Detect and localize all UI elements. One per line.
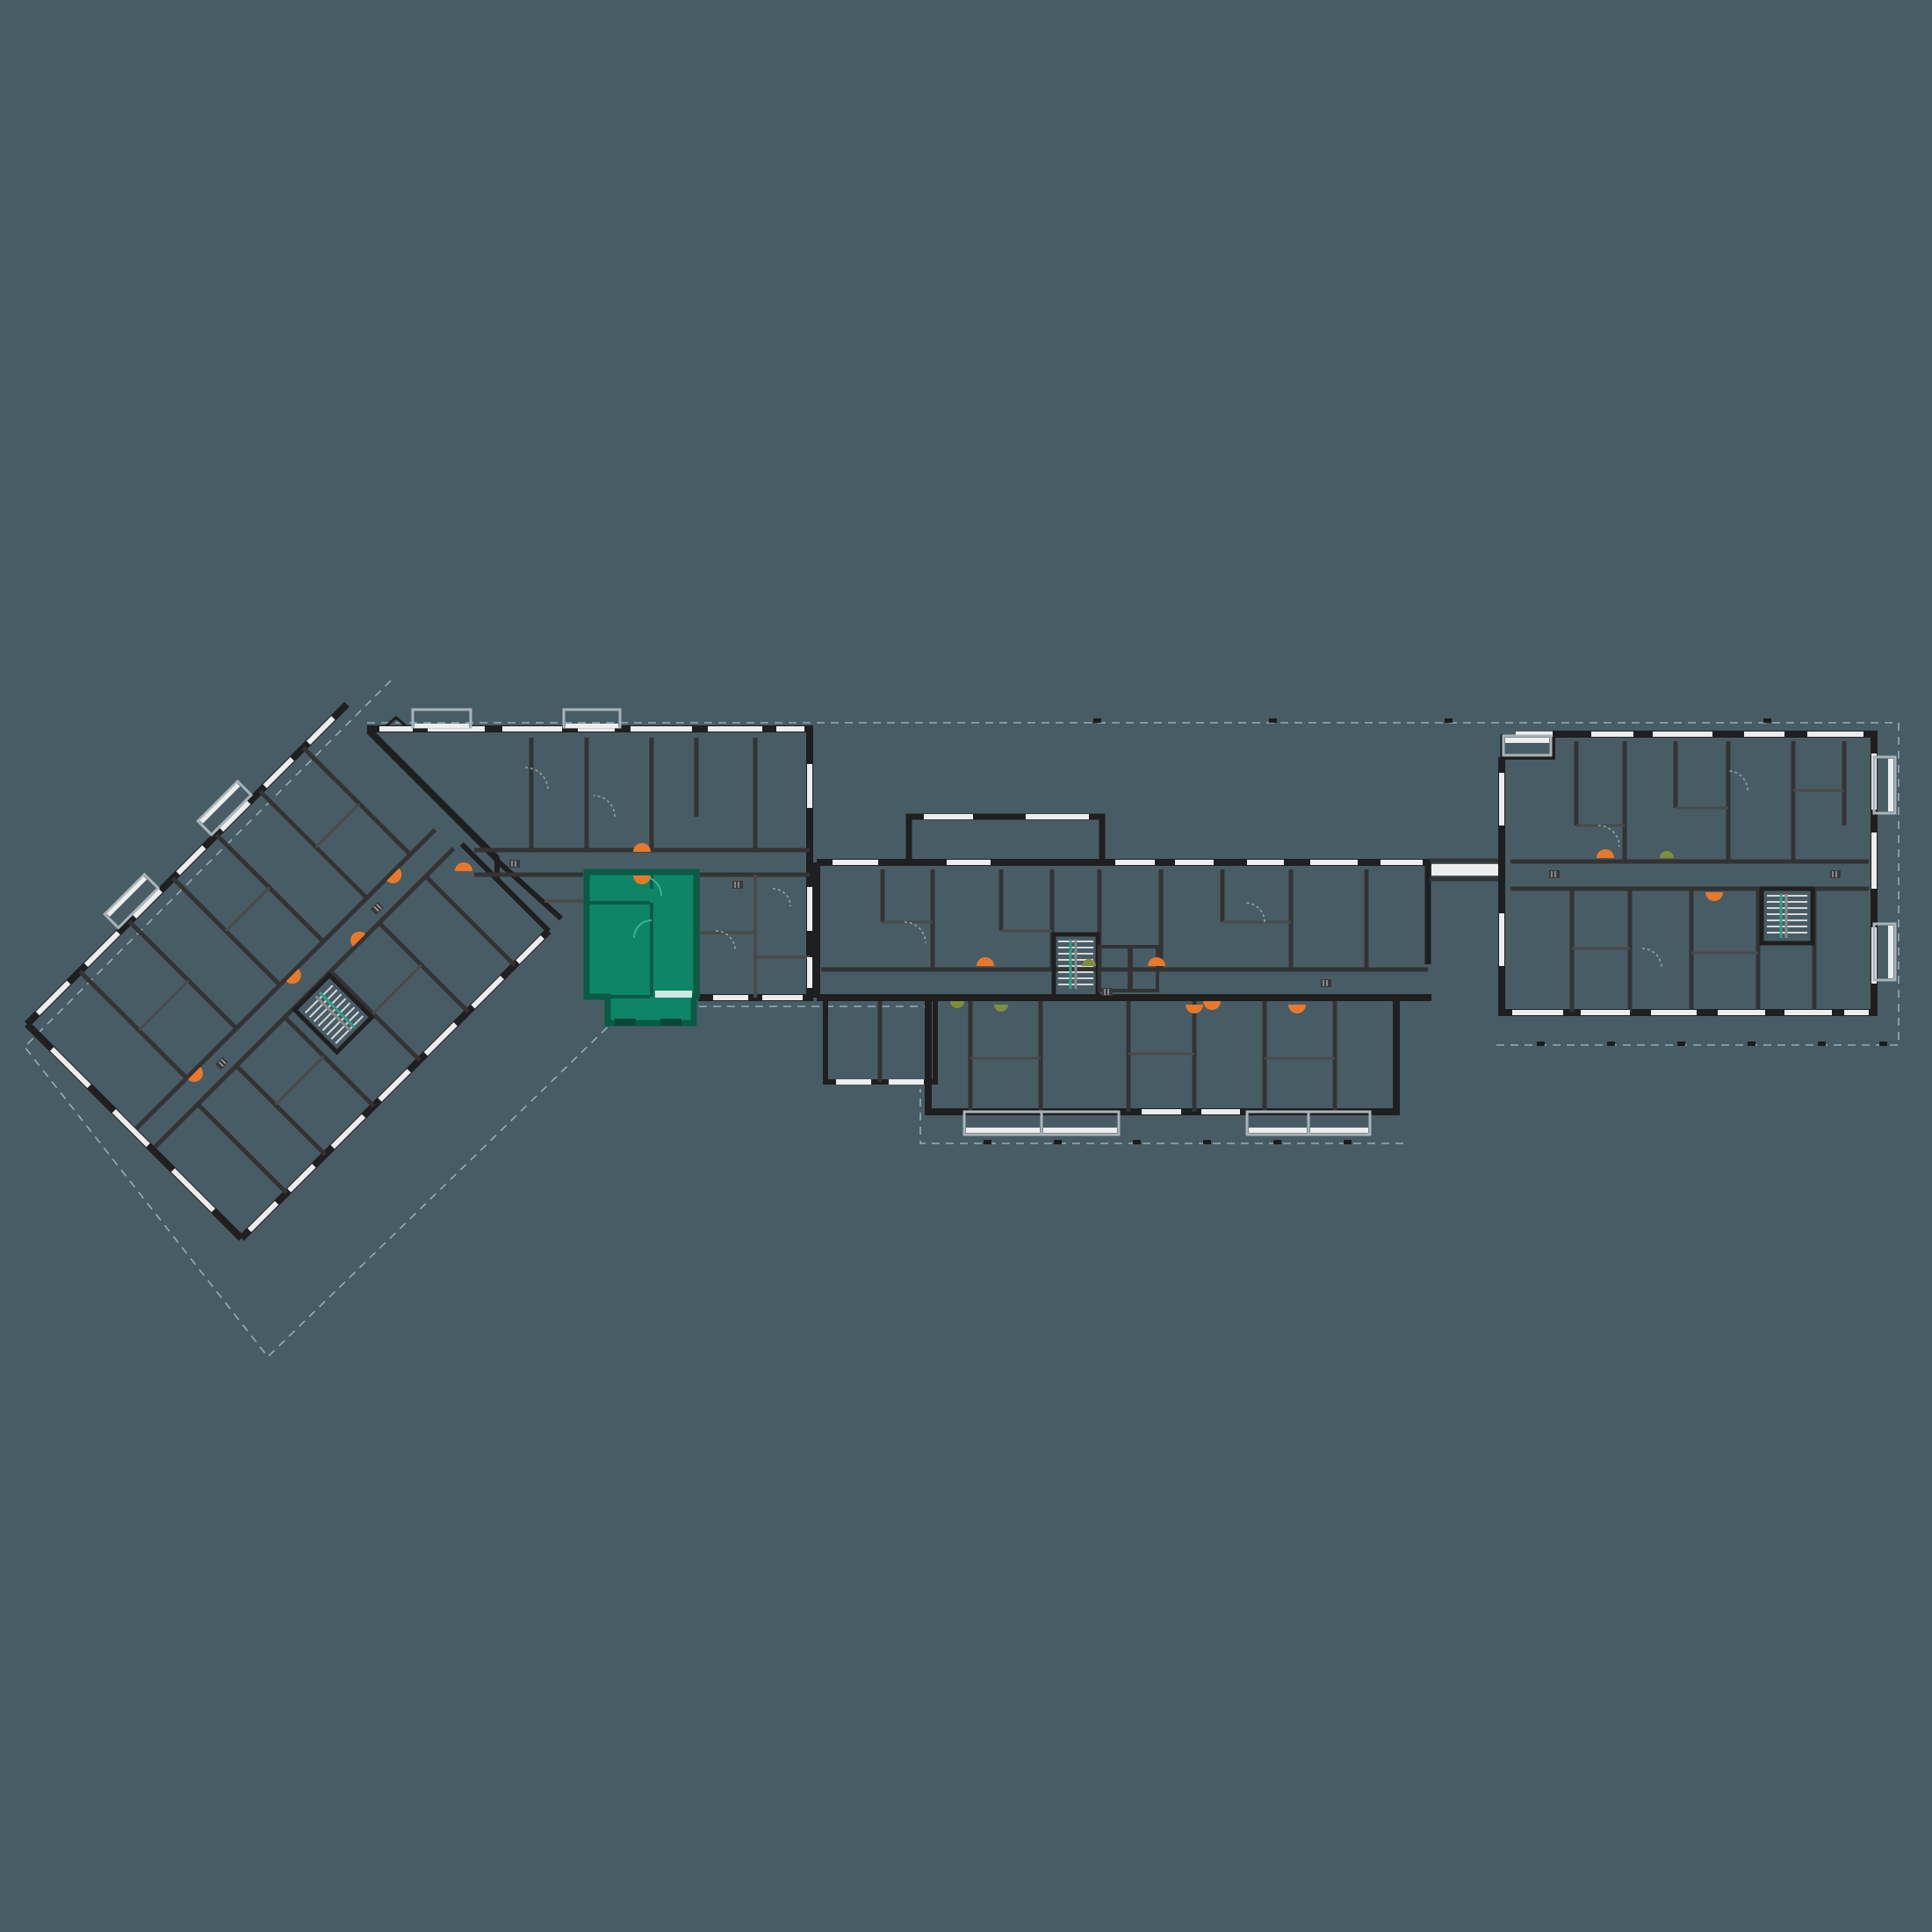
vent-icon bbox=[732, 881, 743, 889]
vent-icon bbox=[1321, 979, 1331, 987]
floor-plan-canvas bbox=[0, 0, 1932, 1932]
vent-icon bbox=[1549, 870, 1560, 878]
vent-icon bbox=[1830, 870, 1841, 878]
background bbox=[0, 0, 1932, 1932]
vent-icon bbox=[509, 860, 520, 868]
vent-icon bbox=[1102, 988, 1113, 996]
floor-plan-viewport bbox=[0, 0, 1932, 1932]
unit-window-strip bbox=[655, 991, 692, 998]
selected-apartment-highlight[interactable] bbox=[587, 843, 696, 1026]
